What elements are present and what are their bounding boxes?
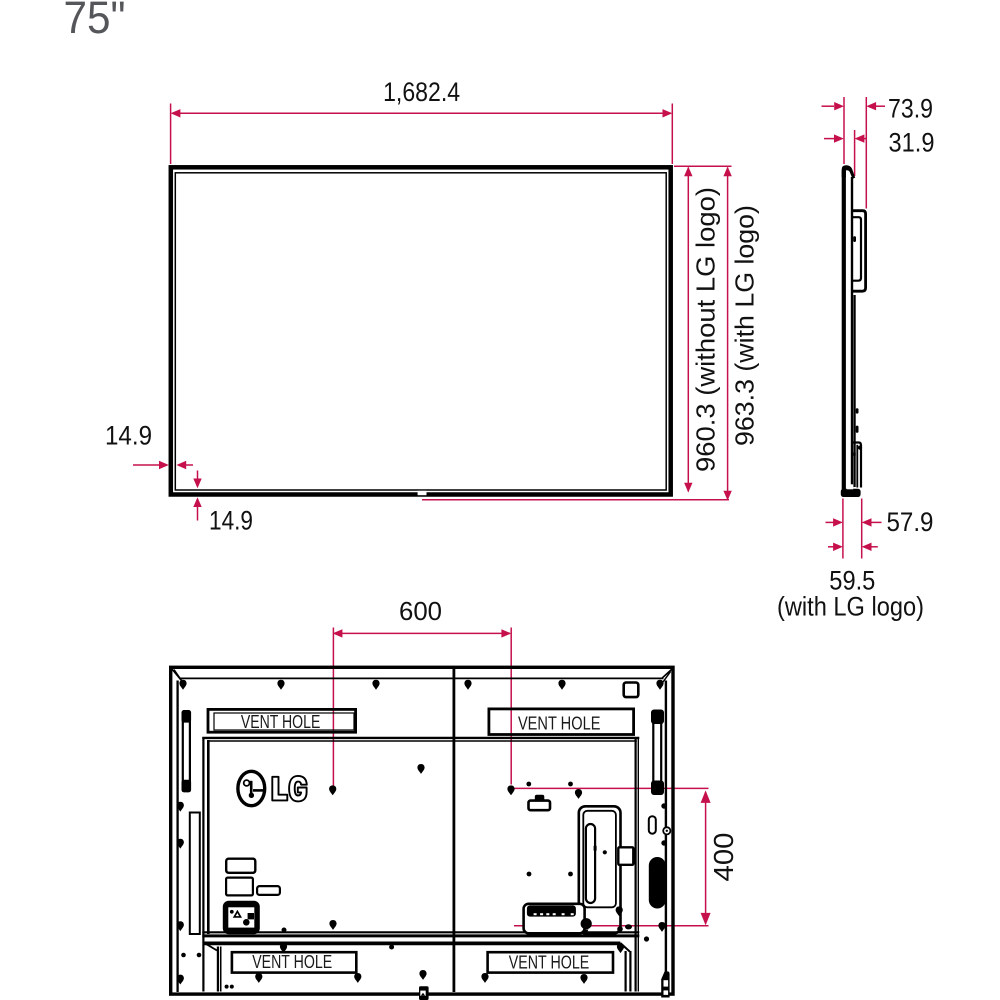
svg-text:VENT HOLE: VENT HOLE [518, 712, 601, 733]
svg-text:(with LG logo): (with LG logo) [777, 591, 924, 621]
svg-text:57.9: 57.9 [887, 507, 934, 537]
svg-text:963.3 (with LG logo): 963.3 (with LG logo) [730, 205, 760, 446]
svg-text:14.9: 14.9 [209, 505, 253, 535]
svg-text:VENT HOLE: VENT HOLE [509, 952, 590, 973]
svg-text:31.9: 31.9 [889, 128, 935, 158]
svg-text:75": 75" [64, 0, 126, 43]
svg-text:600: 600 [399, 596, 442, 626]
svg-text:1,682.4: 1,682.4 [383, 77, 460, 107]
svg-text:400: 400 [708, 833, 739, 882]
svg-text:960.3 (without LG logo): 960.3 (without LG logo) [691, 187, 721, 472]
svg-text:14.9: 14.9 [105, 420, 152, 450]
svg-text:VENT HOLE: VENT HOLE [252, 951, 332, 972]
svg-text:73.9: 73.9 [888, 93, 933, 123]
svg-text:VENT HOLE: VENT HOLE [241, 711, 321, 732]
